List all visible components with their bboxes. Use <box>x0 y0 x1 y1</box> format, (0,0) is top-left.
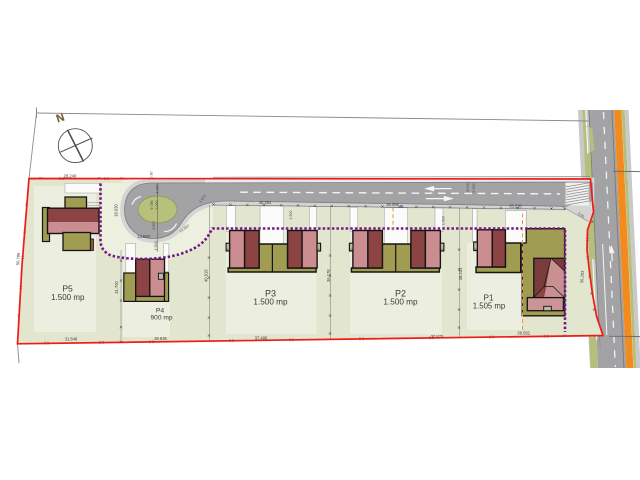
svg-text:900 mp: 900 mp <box>151 315 173 322</box>
svg-text:36.086: 36.086 <box>386 202 399 207</box>
svg-text:9.786: 9.786 <box>150 200 154 209</box>
svg-text:4.360: 4.360 <box>155 184 159 193</box>
svg-text:0.90: 0.90 <box>150 171 154 178</box>
svg-text:1.500 mp: 1.500 mp <box>253 298 288 307</box>
svg-text:7.000: 7.000 <box>155 200 159 209</box>
svg-text:18.030: 18.030 <box>114 204 119 217</box>
svg-text:P5: P5 <box>62 284 73 294</box>
svg-text:13.500: 13.500 <box>137 234 150 239</box>
svg-text:36.203: 36.203 <box>579 270 585 284</box>
svg-text:1.500: 1.500 <box>154 241 158 250</box>
svg-text:4.000: 4.000 <box>152 221 156 230</box>
svg-text:1.500: 1.500 <box>289 210 293 219</box>
svg-text:31.848: 31.848 <box>65 337 78 342</box>
svg-text:31.700: 31.700 <box>114 281 119 294</box>
svg-text:P4: P4 <box>156 308 165 315</box>
svg-text:6.000: 6.000 <box>472 183 476 192</box>
svg-text:50.786: 50.786 <box>15 252 21 266</box>
svg-text:35.220: 35.220 <box>509 203 522 208</box>
svg-text:8.000: 8.000 <box>466 182 470 191</box>
svg-text:40.354: 40.354 <box>259 200 272 205</box>
svg-text:1.500 mp: 1.500 mp <box>383 298 418 307</box>
svg-text:40.515: 40.515 <box>203 269 208 282</box>
svg-text:28.240: 28.240 <box>64 173 77 178</box>
svg-text:1.505 mp: 1.505 mp <box>473 302 506 311</box>
svg-text:1.500: 1.500 <box>442 216 446 225</box>
svg-text:1.500 mp: 1.500 mp <box>51 293 85 302</box>
svg-text:39.592: 39.592 <box>517 331 530 336</box>
svg-text:36.835: 36.835 <box>154 336 167 341</box>
